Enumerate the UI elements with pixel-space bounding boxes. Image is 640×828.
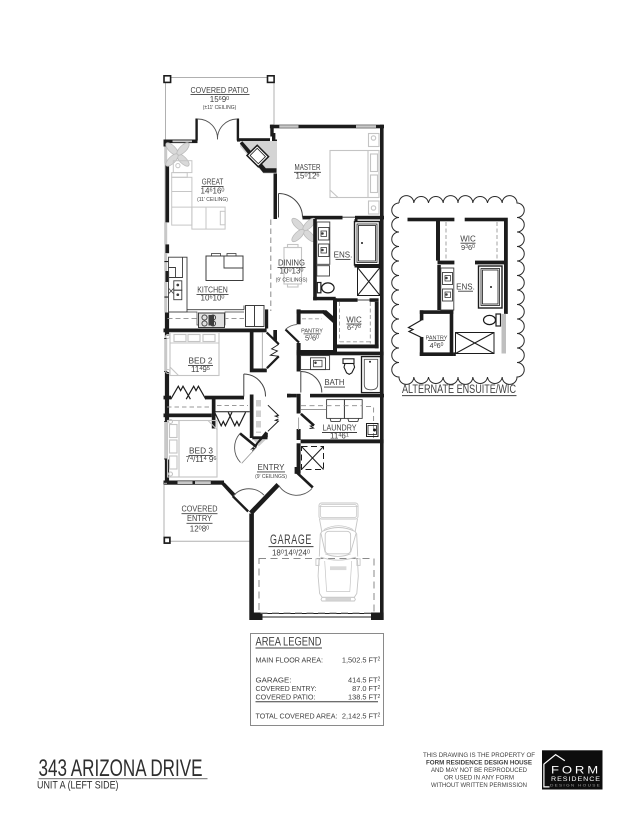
svg-text:WITHOUT WRITTEN PERMISSION: WITHOUT WRITTEN PERMISSION xyxy=(431,782,527,789)
svg-text:AND MAY NOT BE REPRODUCED: AND MAY NOT BE REPRODUCED xyxy=(431,767,527,774)
svg-text:FORM RESIDENCE DESIGN HOUSE: FORM RESIDENCE DESIGN HOUSE xyxy=(426,759,533,766)
svg-text:COVERED: COVERED xyxy=(182,504,218,514)
svg-text:COVERED ENTRY:: COVERED ENTRY: xyxy=(256,684,317,693)
svg-text:COVERED PATIO:: COVERED PATIO: xyxy=(256,693,316,702)
svg-text:RESIDENCE: RESIDENCE xyxy=(551,777,601,783)
svg-text:GARAGE: GARAGE xyxy=(270,532,312,547)
svg-text:LAUNDRY: LAUNDRY xyxy=(323,422,357,432)
svg-text:GREAT: GREAT xyxy=(202,176,224,186)
svg-text:ENTRY: ENTRY xyxy=(258,462,285,472)
svg-text:ENS.: ENS. xyxy=(334,251,353,260)
svg-text:OR USED IN ANY FORM: OR USED IN ANY FORM xyxy=(444,774,514,781)
svg-text:COVERED PATIO: COVERED PATIO xyxy=(191,85,249,95)
svg-text:DESIGN HOUSE: DESIGN HOUSE xyxy=(550,784,601,788)
svg-text:ENTRY: ENTRY xyxy=(187,513,212,523)
svg-text:MAIN FLOOR AREA:: MAIN FLOOR AREA: xyxy=(256,655,324,664)
svg-text:(±11' CEILING): (±11' CEILING) xyxy=(203,105,237,111)
svg-text:100130: 100130 xyxy=(280,267,304,276)
svg-text:BED 2: BED 2 xyxy=(189,355,213,365)
svg-text:150126: 150126 xyxy=(296,172,320,181)
svg-text:(11' CEILING): (11' CEILING) xyxy=(197,197,228,203)
svg-text:FORM: FORM xyxy=(551,765,601,777)
svg-text:106100: 106100 xyxy=(201,294,225,303)
svg-text:(9' CEILINGS): (9' CEILINGS) xyxy=(276,278,308,284)
svg-text:BED 3: BED 3 xyxy=(189,445,213,455)
svg-text:2,142.5: 2,142.5 xyxy=(342,712,367,721)
svg-text:TOTAL COVERED AREA:: TOTAL COVERED AREA: xyxy=(256,712,338,721)
svg-text:BATH: BATH xyxy=(325,377,345,387)
svg-text:GARAGE:: GARAGE: xyxy=(256,675,292,684)
svg-text:ALTERNATE ENSUITE/WIC: ALTERNATE ENSUITE/WIC xyxy=(402,384,516,396)
svg-text:UNIT A (LEFT SIDE): UNIT A (LEFT SIDE) xyxy=(37,780,119,792)
svg-text:87.0: 87.0 xyxy=(352,684,366,693)
svg-text:138.5: 138.5 xyxy=(348,693,367,702)
svg-text:(9' CEILINGS): (9' CEILINGS) xyxy=(255,474,287,480)
svg-text:343 ARIZONA DRIVE: 343 ARIZONA DRIVE xyxy=(39,755,203,782)
svg-text:AREA LEGEND: AREA LEGEND xyxy=(256,636,322,648)
svg-text:THIS DRAWING IS THE PROPERTY O: THIS DRAWING IS THE PROPERTY OF xyxy=(423,752,535,759)
svg-text:146160: 146160 xyxy=(201,186,225,195)
svg-text:1,502.5: 1,502.5 xyxy=(342,655,367,664)
svg-text:ENS.: ENS. xyxy=(456,282,475,291)
svg-text:414.5: 414.5 xyxy=(348,675,367,684)
svg-text:180140/240: 180140/240 xyxy=(272,548,310,557)
